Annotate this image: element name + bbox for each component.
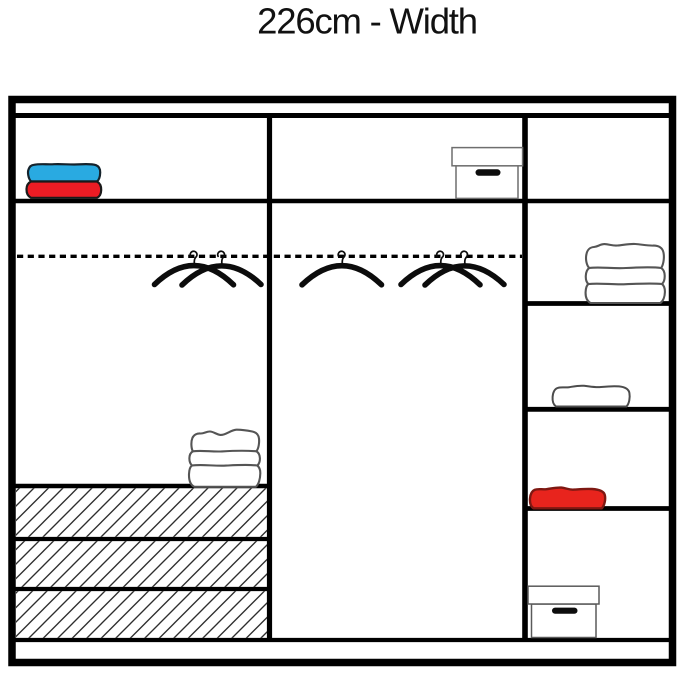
svg-text:226cm - Width: 226cm - Width [257,1,477,42]
